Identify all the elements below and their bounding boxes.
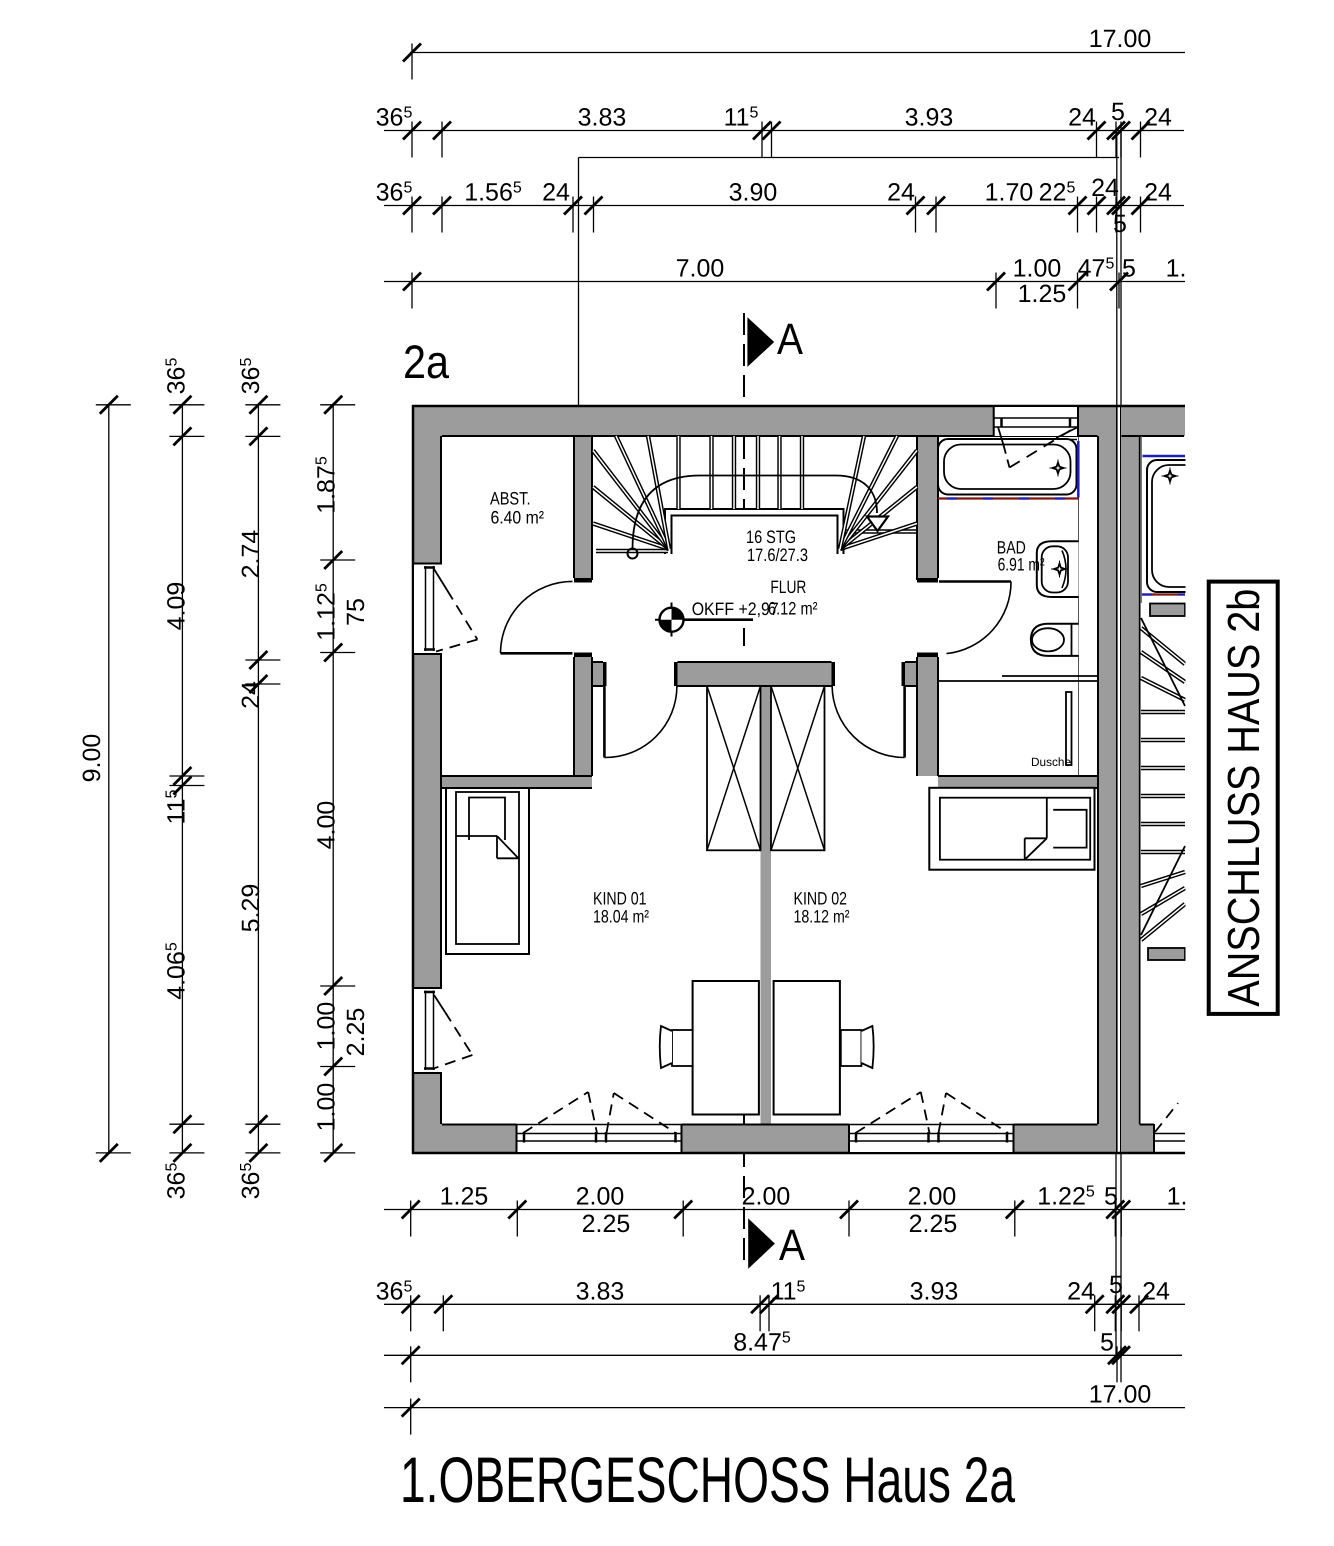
svg-text:5: 5 — [1100, 1329, 1114, 1357]
svg-text:KIND 01: KIND 01 — [593, 888, 647, 908]
svg-text:1.: 1. — [1166, 255, 1187, 283]
svg-text:17.6/27.3: 17.6/27.3 — [747, 545, 808, 565]
svg-text:2.00: 2.00 — [908, 1183, 957, 1211]
svg-text:2.25: 2.25 — [342, 1008, 370, 1057]
svg-text:FLUR: FLUR — [770, 577, 806, 597]
svg-text:9.00: 9.00 — [78, 734, 106, 783]
svg-text:1.00: 1.00 — [1013, 255, 1062, 283]
svg-text:1.25: 1.25 — [1018, 280, 1067, 308]
svg-text:1.OBERGESCHOSS Haus 2a: 1.OBERGESCHOSS Haus 2a — [400, 1444, 1015, 1516]
svg-text:3.83: 3.83 — [578, 104, 627, 132]
svg-text:5: 5 — [1122, 255, 1136, 283]
svg-text:2.74: 2.74 — [237, 530, 265, 579]
svg-text:2.25: 2.25 — [582, 1210, 631, 1238]
svg-text:1.00: 1.00 — [313, 1083, 341, 1132]
svg-text:A: A — [779, 1221, 806, 1270]
svg-text:2a: 2a — [403, 335, 450, 388]
svg-text:A: A — [777, 315, 804, 364]
svg-text:18.12 m²: 18.12 m² — [794, 906, 850, 926]
svg-text:KIND 02: KIND 02 — [794, 888, 848, 908]
svg-text:18.04 m²: 18.04 m² — [593, 906, 649, 926]
svg-text:1.25: 1.25 — [440, 1183, 489, 1211]
svg-text:24: 24 — [1067, 1278, 1095, 1306]
svg-text:1.00: 1.00 — [313, 1002, 341, 1051]
svg-text:6.91 m²: 6.91 m² — [998, 555, 1045, 575]
svg-text:2.00: 2.00 — [742, 1183, 791, 1211]
svg-text:2.00: 2.00 — [576, 1183, 625, 1211]
svg-text:24: 24 — [542, 179, 570, 207]
svg-text:5.29: 5.29 — [237, 884, 265, 933]
svg-text:3.90: 3.90 — [729, 179, 778, 207]
svg-text:24: 24 — [1144, 104, 1172, 132]
svg-text:4.09: 4.09 — [163, 582, 191, 631]
svg-text:2.25: 2.25 — [909, 1210, 958, 1238]
svg-text:6.40 m²: 6.40 m² — [491, 508, 545, 528]
svg-text:24: 24 — [1091, 174, 1119, 202]
svg-text:3.93: 3.93 — [905, 104, 954, 132]
svg-text:5: 5 — [1113, 210, 1127, 238]
svg-text:17.00: 17.00 — [1089, 25, 1152, 53]
svg-text:3.93: 3.93 — [910, 1278, 959, 1306]
svg-text:ANSCHLUSS HAUS 2b: ANSCHLUSS HAUS 2b — [1218, 589, 1269, 1007]
svg-text:Dusche: Dusche — [1031, 755, 1071, 769]
svg-text:1.70: 1.70 — [985, 179, 1034, 207]
svg-text:24: 24 — [1142, 1278, 1170, 1306]
svg-text:4.00: 4.00 — [313, 801, 341, 850]
svg-text:1.: 1. — [1167, 1183, 1188, 1211]
svg-text:24: 24 — [237, 681, 265, 709]
svg-text:OKFF +2,97: OKFF +2,97 — [692, 599, 779, 619]
svg-text:16 STG: 16 STG — [746, 527, 796, 547]
svg-text:24: 24 — [1144, 179, 1172, 207]
svg-text:17.00: 17.00 — [1089, 1381, 1152, 1409]
svg-text:75: 75 — [342, 598, 370, 626]
svg-text:24: 24 — [1068, 104, 1096, 132]
svg-text:ABST.: ABST. — [490, 489, 531, 509]
svg-text:7.00: 7.00 — [676, 255, 725, 283]
svg-text:5: 5 — [1111, 98, 1125, 126]
svg-text:24: 24 — [887, 179, 915, 207]
svg-text:3.83: 3.83 — [576, 1278, 625, 1306]
